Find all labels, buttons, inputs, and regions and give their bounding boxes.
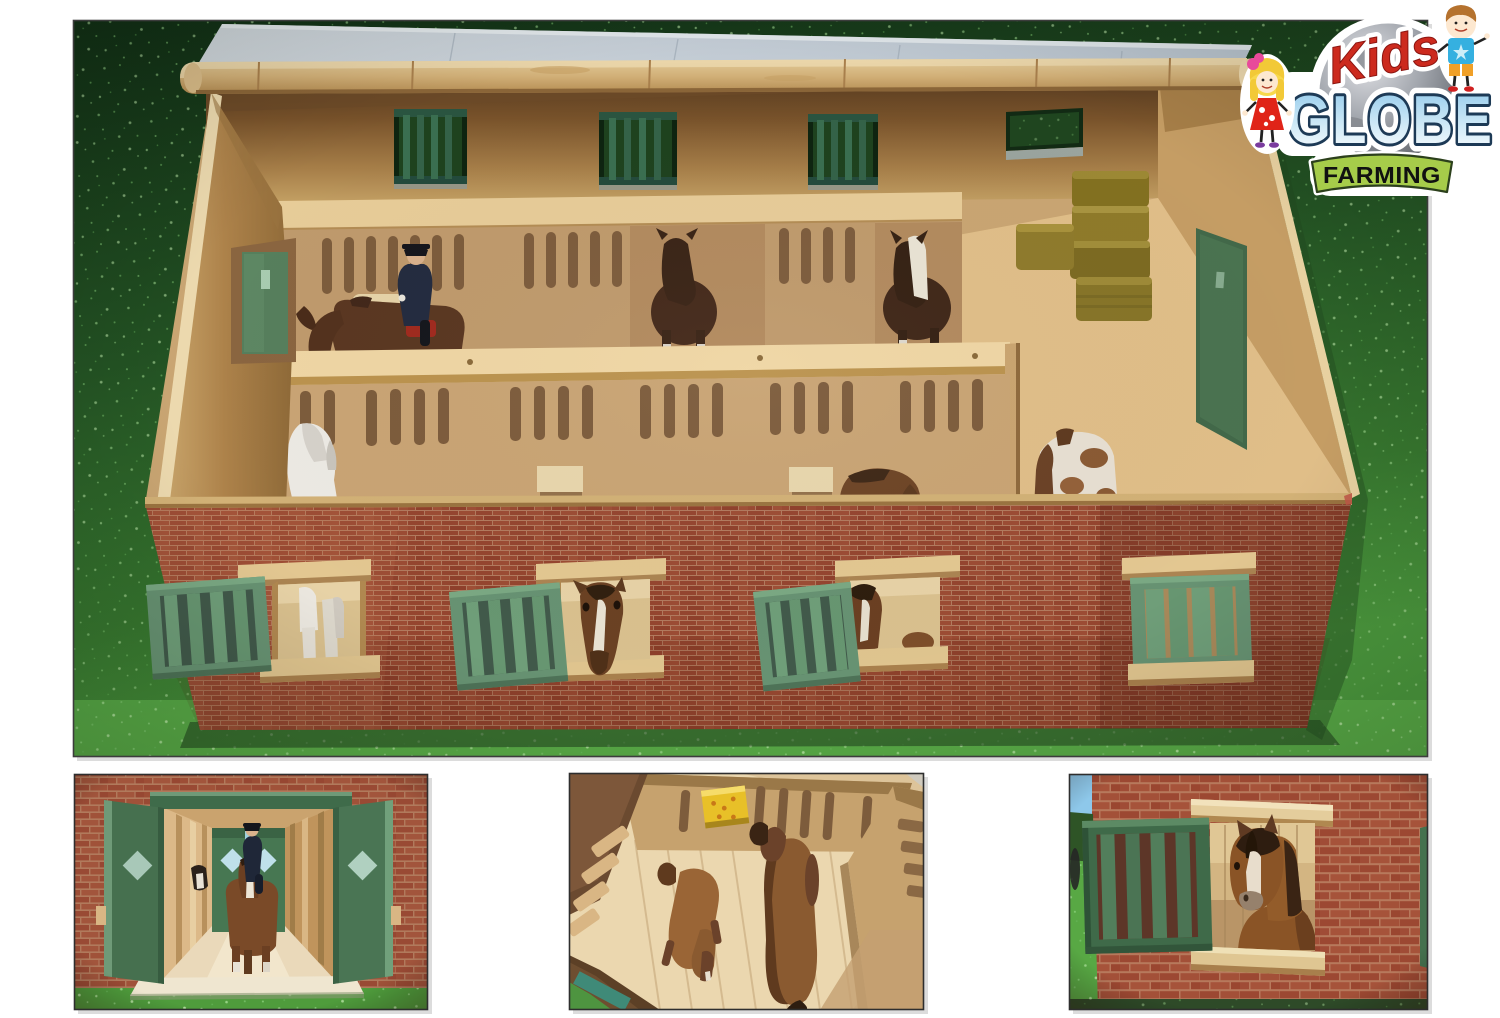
svg-text:GLOBE: GLOBE [1287, 82, 1493, 157]
svg-text:FARMING: FARMING [1323, 162, 1441, 188]
